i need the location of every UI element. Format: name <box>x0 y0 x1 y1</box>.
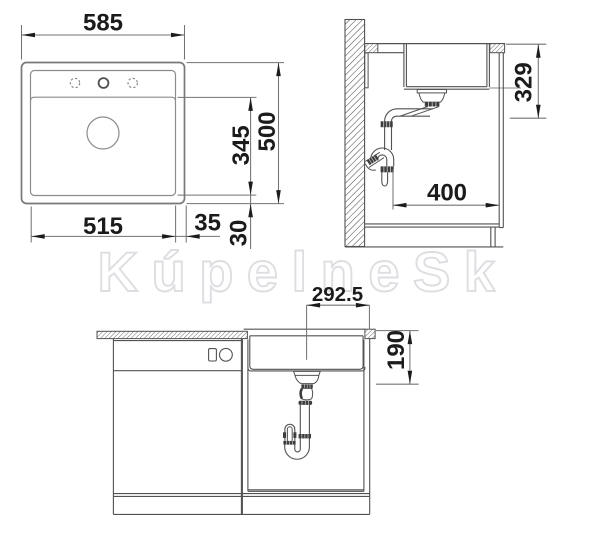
svg-text:585: 585 <box>83 10 123 37</box>
svg-text:KúpelneSk: KúpelneSk <box>98 240 509 303</box>
svg-text:190: 190 <box>383 330 410 370</box>
svg-text:345: 345 <box>228 125 255 165</box>
svg-text:35: 35 <box>194 210 221 237</box>
svg-text:292.5: 292.5 <box>312 283 363 306</box>
svg-text:515: 515 <box>83 213 123 240</box>
svg-text:329: 329 <box>511 62 538 102</box>
svg-text:500: 500 <box>254 111 281 151</box>
svg-text:400: 400 <box>427 179 467 206</box>
svg-text:30: 30 <box>226 220 253 247</box>
